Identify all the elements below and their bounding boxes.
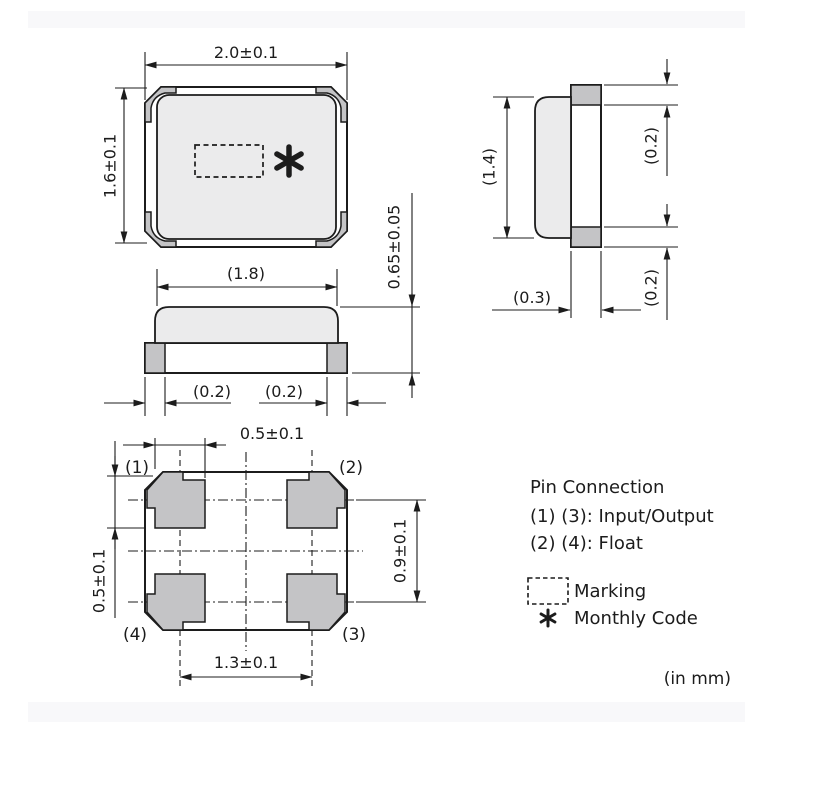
- front-view-pad-dimensions: (0.2) (0.2): [104, 377, 386, 416]
- side-view-base-width-dimension: (0.3): [492, 251, 641, 318]
- pin-connection-io: (1) (3): Input/Output: [530, 506, 714, 527]
- side-view-top-pad: [571, 85, 601, 105]
- dim-lid-width: (1.8): [227, 264, 265, 283]
- pin-2-label: (2): [339, 458, 363, 478]
- monthly-code-label: Monthly Code: [574, 608, 698, 629]
- pin-connection-float: (2) (4): Float: [530, 533, 643, 554]
- top-view-lid: [157, 95, 336, 239]
- bottom-view-pad-2: [287, 472, 345, 528]
- dim-pad-pitch-vertical: 0.9±0.1: [391, 519, 410, 583]
- pin-3-label: (3): [342, 625, 366, 645]
- dim-lid-height: (1.4): [480, 148, 499, 186]
- pin-connection-title: Pin Connection: [530, 477, 664, 498]
- monthly-code-legend-asterisk-icon: [541, 610, 555, 626]
- notes-block: Pin Connection (1) (3): Input/Output (2)…: [528, 477, 731, 689]
- pin-4-label: (4): [123, 625, 147, 645]
- dim-side-top-pad: (0.2): [642, 127, 661, 165]
- dim-pad-width: 0.5±0.1: [240, 424, 304, 443]
- dim-body-height: 1.6±0.1: [101, 134, 120, 198]
- marking-label: Marking: [574, 581, 646, 602]
- marking-legend-box-icon: [528, 578, 568, 604]
- top-view: 2.0±0.1 1.6±0.1: [101, 43, 347, 247]
- side-view-bottom-pad-dimension: (0.2): [604, 204, 678, 320]
- dim-pad-height: 0.5±0.1: [90, 549, 109, 613]
- front-view-lid: [155, 307, 338, 343]
- bottom-view-vertical-pitch-dimension: 0.9±0.1: [356, 500, 426, 602]
- bottom-view-pad-1: [147, 472, 205, 528]
- top-view-height-dimension: 1.6±0.1: [101, 88, 147, 243]
- front-view-lid-width-dimension: (1.8): [157, 264, 337, 306]
- bottom-view-pad-4: [147, 574, 205, 630]
- side-view-lid: [535, 97, 571, 238]
- dim-base-width: (0.3): [513, 288, 551, 307]
- bottom-view-horizontal-pitch-dimension: 1.3±0.1: [180, 653, 312, 677]
- side-view-bottom-pad: [571, 227, 601, 247]
- top-separator-bar: [28, 11, 745, 28]
- side-view-top-pad-dimension: (0.2): [604, 59, 678, 176]
- units-note: (in mm): [664, 669, 731, 689]
- dim-body-width: 2.0±0.1: [214, 43, 278, 62]
- front-view-base: [145, 343, 347, 373]
- bottom-view: 0.5±0.1 0.5±0.1 0.9±0.1 1.3±0.1 (1) (2) …: [90, 424, 426, 688]
- pin-1-label: (1): [125, 458, 149, 478]
- dim-pad-pitch-horizontal: 1.3±0.1: [214, 653, 278, 672]
- thickness-dimension: 0.65±0.05: [340, 193, 420, 398]
- front-view-left-pad: [145, 343, 165, 373]
- side-view-lid-height-dimension: (1.4): [480, 97, 534, 238]
- bottom-view-pad-3: [287, 574, 345, 630]
- dim-front-right-pad: (0.2): [265, 382, 303, 401]
- side-view: (1.4) (0.2) (0.2) (0.3): [480, 59, 678, 320]
- dim-side-bottom-pad: (0.2): [642, 269, 661, 307]
- bottom-separator-bar: [28, 702, 745, 722]
- front-view-right-pad: [327, 343, 347, 373]
- bottom-view-pad-width-dimension: 0.5±0.1: [123, 424, 304, 478]
- dim-front-left-pad: (0.2): [193, 382, 231, 401]
- side-view-base: [571, 85, 601, 247]
- dim-body-thickness: 0.65±0.05: [385, 205, 404, 290]
- package-dimensions-drawing: 2.0±0.1 1.6±0.1 (1.8): [0, 0, 831, 787]
